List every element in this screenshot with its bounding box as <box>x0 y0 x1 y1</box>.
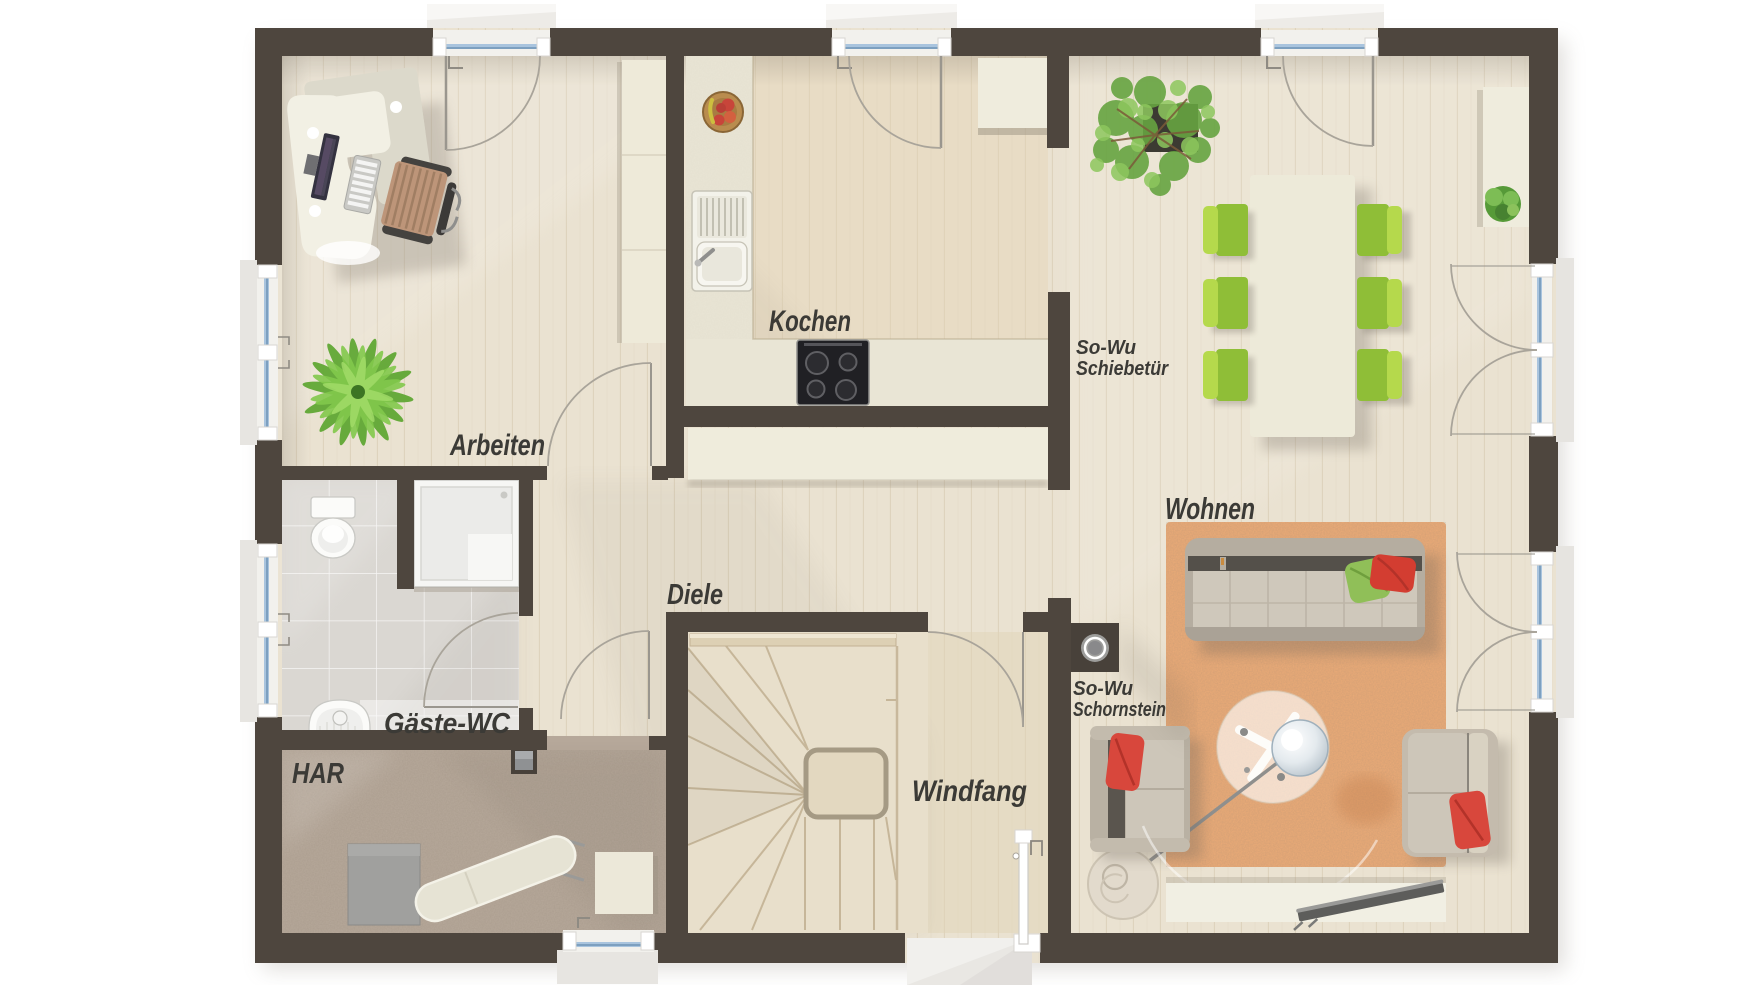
svg-text:So-Wu: So-Wu <box>1076 337 1136 359</box>
svg-text:Diele: Diele <box>667 579 723 611</box>
svg-text:Arbeiten: Arbeiten <box>449 429 545 462</box>
svg-text:Wohnen: Wohnen <box>1165 491 1255 526</box>
svg-text:Kochen: Kochen <box>769 305 851 338</box>
svg-text:Windfang: Windfang <box>912 775 1027 808</box>
svg-text:Schiebetür: Schiebetür <box>1076 358 1169 380</box>
svg-text:HAR: HAR <box>292 758 344 790</box>
svg-text:So-Wu: So-Wu <box>1073 678 1133 700</box>
svg-text:Schornstein: Schornstein <box>1073 699 1166 721</box>
svg-text:Gäste-WC: Gäste-WC <box>384 708 511 740</box>
